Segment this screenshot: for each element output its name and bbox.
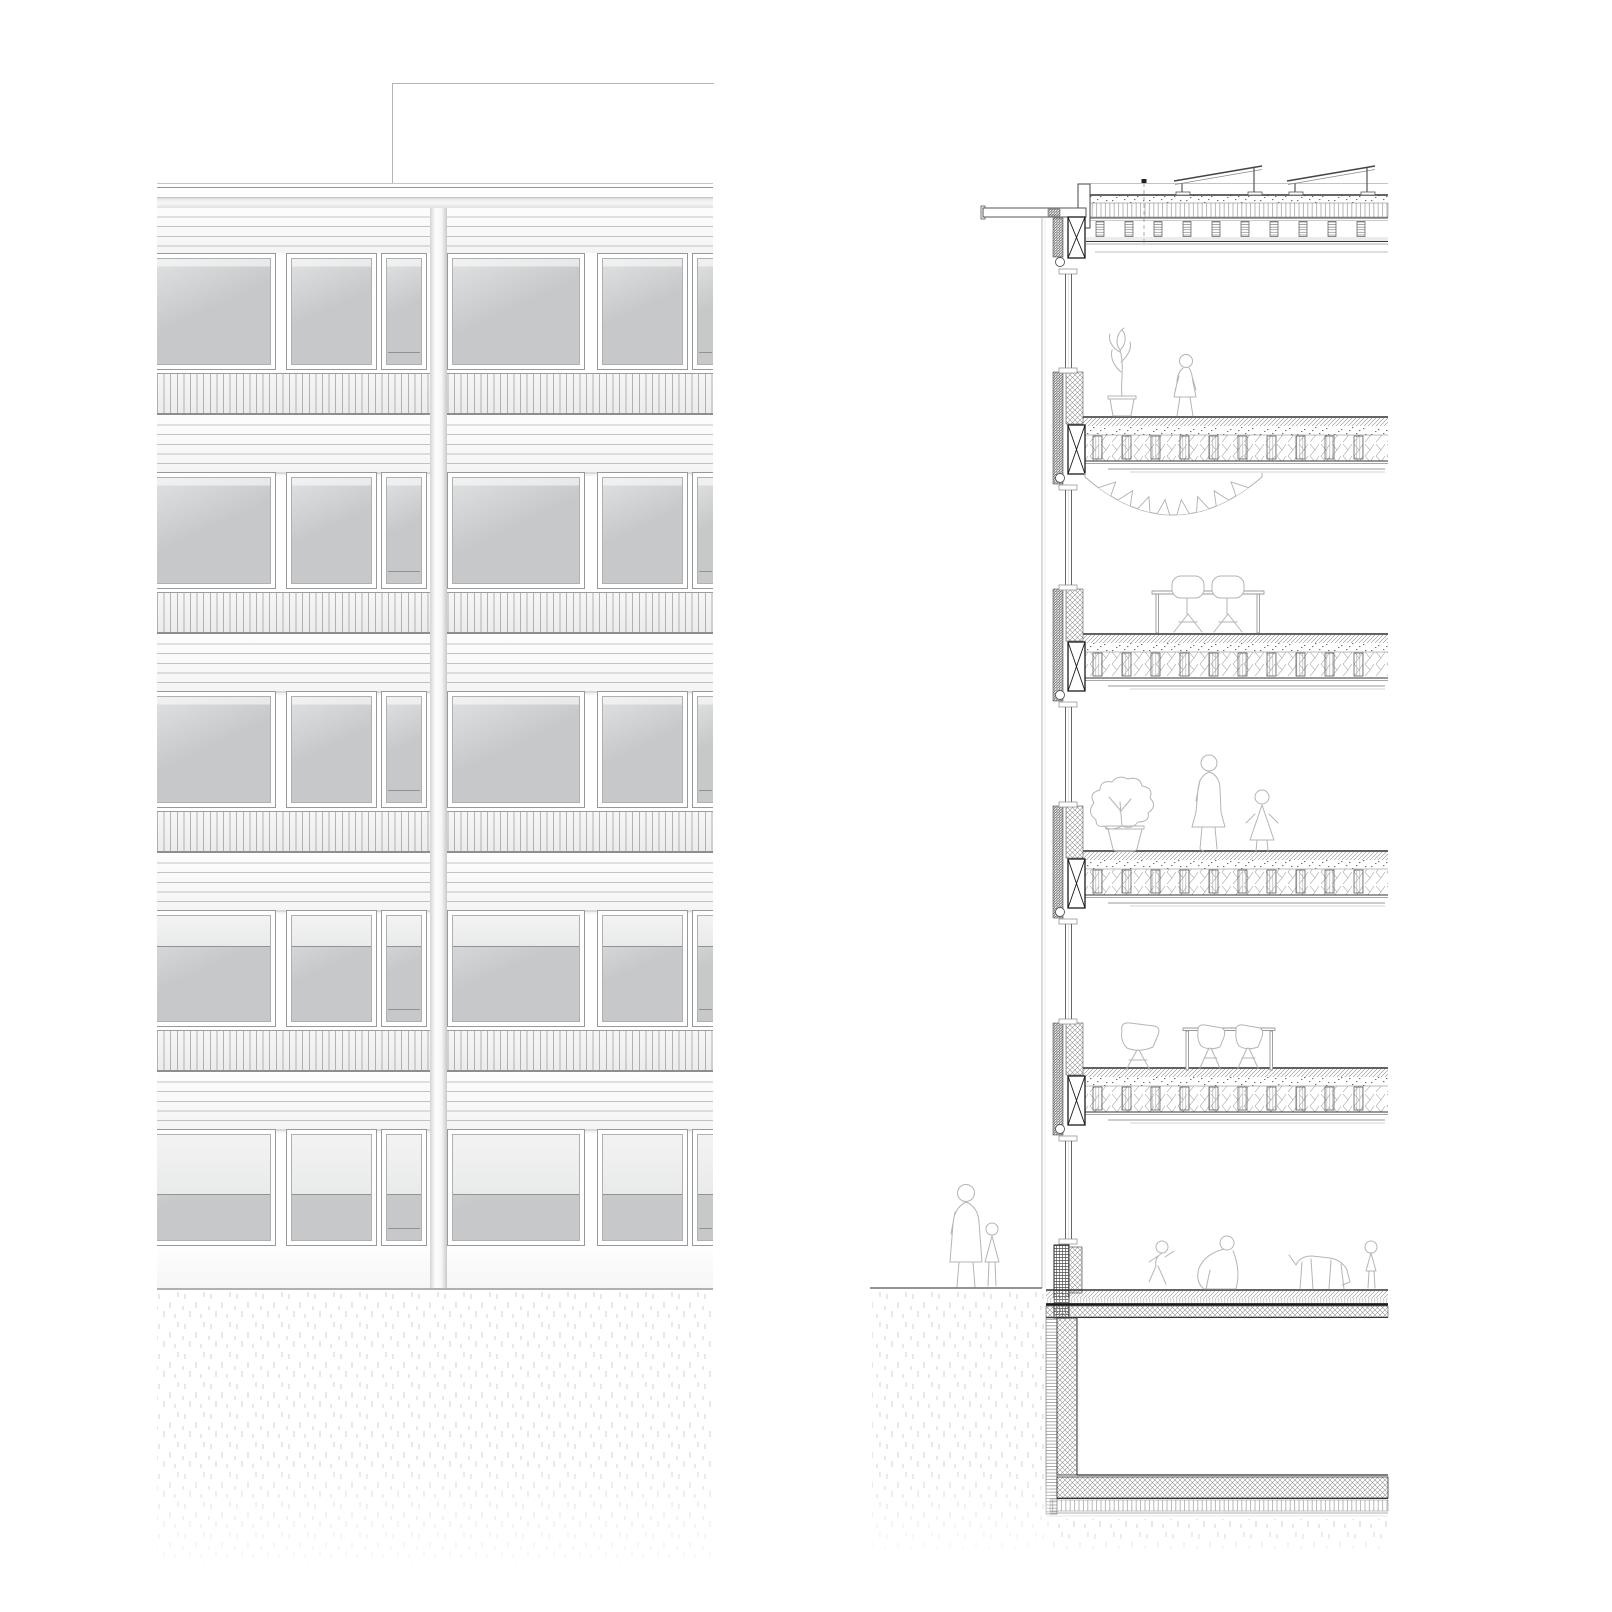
garland-arc xyxy=(1085,477,1262,515)
window-glass xyxy=(291,1134,372,1241)
facade-window xyxy=(692,691,713,808)
window-transom xyxy=(388,790,420,791)
spandrel-insulation xyxy=(1053,372,1063,484)
pennant-garland xyxy=(1085,473,1262,515)
window-transom xyxy=(388,1009,420,1010)
window-glass xyxy=(602,696,683,803)
window-head-block xyxy=(1059,919,1077,924)
window-blind xyxy=(453,916,579,947)
figure-head xyxy=(1156,1241,1168,1253)
window-sill-block xyxy=(1059,368,1077,373)
window-glass xyxy=(386,258,422,365)
table-leg xyxy=(1257,594,1260,633)
floor-slab xyxy=(1083,851,1388,906)
blind-box-circle xyxy=(1056,474,1065,483)
roof-joist xyxy=(1328,222,1336,237)
floor-joist xyxy=(1354,436,1363,459)
chair-legs xyxy=(1174,598,1202,632)
section-wall xyxy=(1042,217,1085,1318)
floor-joist xyxy=(1238,1087,1247,1110)
floor-joist xyxy=(1151,870,1160,893)
window-glass xyxy=(157,258,271,365)
window-transom xyxy=(699,1009,712,1010)
roof-canopy xyxy=(983,208,1086,217)
solar-panel xyxy=(1287,166,1375,195)
window-sill-block xyxy=(1059,802,1077,807)
figure-head xyxy=(986,1223,998,1235)
window-glass xyxy=(602,258,683,365)
window-glazing-section xyxy=(1059,1136,1077,1244)
blind-box-circle xyxy=(1056,691,1065,700)
architectural-drawing-canvas: { "drawing": { "kind": "architectural li… xyxy=(0,0,1612,1612)
floor-joist xyxy=(1238,653,1247,676)
window-glass xyxy=(452,477,580,584)
panel-underside xyxy=(1288,170,1375,185)
window-glass xyxy=(157,696,271,803)
stipple-fade xyxy=(860,1470,1050,1570)
floor-joist xyxy=(1267,653,1276,676)
panel-foot xyxy=(1248,192,1262,195)
figure-head xyxy=(1220,1236,1234,1250)
concrete-band xyxy=(1083,1077,1388,1086)
window-glass xyxy=(386,477,422,584)
spandrel-insulation xyxy=(1053,589,1063,701)
window-glass xyxy=(291,477,372,584)
floor-joist xyxy=(1354,1087,1363,1110)
concrete-band xyxy=(1083,860,1388,869)
window-transom xyxy=(699,352,712,353)
facade-window xyxy=(286,472,377,589)
timber-column-section xyxy=(1068,1076,1085,1125)
dog-figure xyxy=(1289,1255,1350,1289)
floor-joist xyxy=(1093,653,1102,676)
floor-slab xyxy=(1083,417,1388,472)
floor-joist xyxy=(1151,653,1160,676)
floor-joist xyxy=(1180,653,1189,676)
spandrel-panel xyxy=(1066,589,1083,641)
window-glass xyxy=(602,915,683,1022)
window-glass xyxy=(157,915,271,1022)
facade-window xyxy=(286,253,377,370)
window-glass xyxy=(452,915,580,1022)
facade-window xyxy=(692,910,713,1027)
window-transom xyxy=(699,790,712,791)
figure-head xyxy=(1180,355,1193,368)
facade-window xyxy=(692,472,713,589)
child-figure xyxy=(1149,1251,1174,1284)
window-glass xyxy=(697,696,713,803)
ground-slab-layer xyxy=(1046,1298,1388,1303)
facade-window xyxy=(381,691,427,808)
window-head-block xyxy=(1059,702,1077,707)
floor-joist xyxy=(1151,436,1160,459)
window-glass xyxy=(697,1134,713,1241)
window-blind xyxy=(292,1135,371,1195)
window-glass xyxy=(386,915,422,1022)
table-leg xyxy=(1156,594,1159,633)
ground-slab-insulation xyxy=(1046,1306,1388,1317)
floor-joist xyxy=(1267,1087,1276,1110)
floor-joist xyxy=(1093,436,1102,459)
window-glass xyxy=(386,1134,422,1241)
floor-joist xyxy=(1122,653,1131,676)
facade-window xyxy=(381,472,427,589)
timber-column-section xyxy=(1068,425,1085,474)
blind-box-circle xyxy=(1056,908,1065,917)
facade-elevation-panel xyxy=(157,183,713,1293)
basement-floor-insulation xyxy=(1057,1477,1388,1498)
floor-slab xyxy=(1083,634,1388,689)
plant-branches xyxy=(1109,797,1131,826)
window-blind xyxy=(698,1135,713,1195)
roof-soffit-band xyxy=(1086,237,1388,241)
roof-joist xyxy=(1299,222,1307,237)
roof-joist xyxy=(1357,222,1365,237)
stipple-fade xyxy=(150,1460,720,1590)
chair-legs xyxy=(1214,598,1242,632)
plinth-column xyxy=(1069,1247,1082,1293)
floor-joist xyxy=(1180,1087,1189,1110)
floor-joist xyxy=(1209,436,1218,459)
spandrel-insulation xyxy=(1053,806,1063,918)
window-blind xyxy=(453,1135,579,1195)
facade-window xyxy=(157,910,276,1027)
stipple-fade xyxy=(1040,1530,1395,1560)
pennant-flag xyxy=(1197,497,1209,513)
panel-face xyxy=(1287,166,1375,181)
roof-edge-line xyxy=(157,183,713,188)
spandrel-panel xyxy=(1066,1023,1083,1075)
roof-gravel-band xyxy=(1086,195,1388,203)
chair-figure xyxy=(1198,1025,1225,1049)
window-blind xyxy=(157,1135,270,1195)
window-glass xyxy=(602,1134,683,1241)
chair-figure xyxy=(1236,1025,1263,1049)
floor-joist xyxy=(1180,870,1189,893)
facade-window xyxy=(447,691,585,808)
spandrel-insulation xyxy=(1053,1023,1063,1135)
facade-window xyxy=(447,253,585,370)
spandrel-panel xyxy=(1066,806,1083,858)
panel-underside xyxy=(1175,170,1262,185)
screed-band xyxy=(1083,1069,1388,1077)
facade-window xyxy=(597,691,688,808)
panel-foot xyxy=(1361,192,1375,195)
window-glass xyxy=(452,1134,580,1241)
floor-joist xyxy=(1122,436,1131,459)
screed-band xyxy=(1083,418,1388,426)
window-sill-block xyxy=(1059,585,1077,590)
window-glass xyxy=(602,477,683,584)
floor-joist xyxy=(1209,870,1218,893)
facade-pier xyxy=(430,208,447,1288)
window-sill-block xyxy=(1059,1239,1077,1244)
facade-window xyxy=(447,1129,585,1246)
child-figure xyxy=(1366,1253,1376,1288)
roof-joist xyxy=(1212,222,1220,237)
panel-face xyxy=(1174,166,1262,181)
person-figure xyxy=(1174,368,1196,416)
window-glazing-section xyxy=(1059,919,1077,1024)
basement-subbase xyxy=(1050,1500,1388,1511)
window-glazing-section xyxy=(1059,702,1077,807)
concrete-band xyxy=(1083,426,1388,435)
plant-figure xyxy=(1109,328,1130,396)
floor-joist xyxy=(1093,870,1102,893)
window-transom xyxy=(388,1228,420,1229)
plant-pot-figure xyxy=(1106,826,1144,851)
panel-foot xyxy=(1176,192,1190,195)
roof-joist xyxy=(1096,222,1104,237)
blind-box-circle xyxy=(1056,258,1065,267)
plant-pot-figure xyxy=(1108,396,1136,416)
window-transom xyxy=(388,571,420,572)
facade-window xyxy=(286,691,377,808)
timber-column-section xyxy=(1068,859,1085,908)
window-glass xyxy=(157,477,271,584)
table-leg xyxy=(1186,1031,1189,1070)
floor-joist xyxy=(1209,1087,1218,1110)
window-sill-block xyxy=(1059,1019,1077,1024)
floor-joist xyxy=(1296,653,1305,676)
facade-window xyxy=(447,910,585,1027)
timber-column-section xyxy=(1068,642,1085,691)
floor-joist xyxy=(1122,1087,1131,1110)
window-blind xyxy=(387,916,421,947)
floor-joist xyxy=(1093,1087,1102,1110)
facade-window xyxy=(381,253,427,370)
person-figure xyxy=(950,1202,982,1287)
floor-joist xyxy=(1238,436,1247,459)
facade-window xyxy=(157,472,276,589)
chair-figure xyxy=(1172,576,1204,598)
window-transom xyxy=(699,571,712,572)
figure-head xyxy=(1255,790,1269,804)
roof-vent-tick xyxy=(1142,179,1147,183)
floor-joist xyxy=(1209,653,1218,676)
facade-window xyxy=(692,253,713,370)
child-figure xyxy=(1246,805,1278,851)
window-glass xyxy=(452,696,580,803)
window-glass xyxy=(386,696,422,803)
timber-column-section xyxy=(1068,217,1085,258)
floor-joist xyxy=(1151,1087,1160,1110)
facade-window xyxy=(286,910,377,1027)
window-glass xyxy=(291,696,372,803)
floor-joist xyxy=(1354,653,1363,676)
window-glass xyxy=(291,915,372,1022)
window-glass xyxy=(157,1134,271,1241)
spandrel-panel xyxy=(1066,372,1083,424)
armchair-legs xyxy=(1126,1050,1150,1070)
canopy-insulation xyxy=(1048,209,1060,216)
person-figure xyxy=(1192,772,1225,851)
window-head-block xyxy=(1059,269,1077,274)
floor-joist xyxy=(1354,870,1363,893)
facade-window xyxy=(157,691,276,808)
basement-wall xyxy=(1057,1318,1077,1475)
roof-joist xyxy=(1241,222,1249,237)
facade-window xyxy=(597,472,688,589)
roof-deck-band xyxy=(1086,203,1388,217)
floor-joist xyxy=(1180,436,1189,459)
facade-window xyxy=(597,910,688,1027)
window-glass xyxy=(697,477,713,584)
window-transom xyxy=(699,1228,712,1229)
armchair-figure xyxy=(1122,1023,1159,1050)
pennant-flag xyxy=(1177,500,1189,515)
floor-joist xyxy=(1296,1087,1305,1110)
window-blind xyxy=(698,916,713,947)
floor-joist xyxy=(1325,870,1334,893)
floor-joist xyxy=(1325,653,1334,676)
window-head-block xyxy=(1059,485,1077,490)
solar-panel xyxy=(1174,166,1262,195)
roof-joist xyxy=(1270,222,1278,237)
table-leg xyxy=(1270,1031,1273,1070)
rooftop-penthouse-box xyxy=(392,83,714,184)
ground-line xyxy=(157,1288,713,1290)
figure-head xyxy=(1201,755,1217,771)
facade-window xyxy=(381,1129,427,1246)
window-glass xyxy=(452,258,580,365)
window-glass xyxy=(697,258,713,365)
floor-joist xyxy=(1267,870,1276,893)
chair-figure xyxy=(1212,576,1244,598)
window-glazing-section xyxy=(1059,269,1077,373)
floor-joist xyxy=(1296,870,1305,893)
window-blind xyxy=(603,916,682,947)
ground-slab-screed xyxy=(1046,1291,1388,1298)
floor-joist xyxy=(1267,436,1276,459)
spandrel-insulation xyxy=(1053,218,1063,257)
window-blind xyxy=(292,916,371,947)
window-blind xyxy=(603,1135,682,1195)
floor-slab xyxy=(1083,1068,1388,1123)
table-figure xyxy=(1152,591,1264,594)
screed-band xyxy=(1083,852,1388,860)
window-blind xyxy=(387,1135,421,1195)
person-crouching-figure xyxy=(1198,1249,1238,1289)
facade-window xyxy=(597,1129,688,1246)
facade-window xyxy=(447,472,585,589)
roof-joist xyxy=(1183,222,1191,237)
facade-window xyxy=(157,253,276,370)
screed-band xyxy=(1083,635,1388,643)
facade-window xyxy=(381,910,427,1027)
floor-joist xyxy=(1238,870,1247,893)
facade-window xyxy=(597,253,688,370)
child-figure xyxy=(985,1236,999,1286)
chair-legs xyxy=(1200,1048,1220,1068)
panel-foot xyxy=(1289,192,1303,195)
window-glass xyxy=(697,915,713,1022)
floor-joist xyxy=(1325,1087,1334,1110)
chair-legs xyxy=(1238,1048,1258,1068)
figure-head xyxy=(958,1185,975,1202)
window-glazing-section xyxy=(1059,485,1077,590)
window-head-block xyxy=(1059,1136,1077,1141)
floor-joist xyxy=(1296,436,1305,459)
blind-box-circle xyxy=(1056,1125,1065,1134)
window-blind xyxy=(157,916,270,947)
pennant-flag xyxy=(1138,497,1150,513)
roof-joist xyxy=(1154,222,1162,237)
floor-joist xyxy=(1122,870,1131,893)
roof-joist xyxy=(1125,222,1133,237)
pennant-flag xyxy=(1157,500,1169,515)
facade-window xyxy=(157,1129,276,1246)
window-transom xyxy=(388,352,420,353)
concrete-band xyxy=(1083,643,1388,652)
window-glass xyxy=(291,258,372,365)
floor-joist xyxy=(1325,436,1334,459)
facade-window xyxy=(286,1129,377,1246)
facade-window xyxy=(692,1129,713,1246)
figure-head xyxy=(1365,1241,1377,1253)
